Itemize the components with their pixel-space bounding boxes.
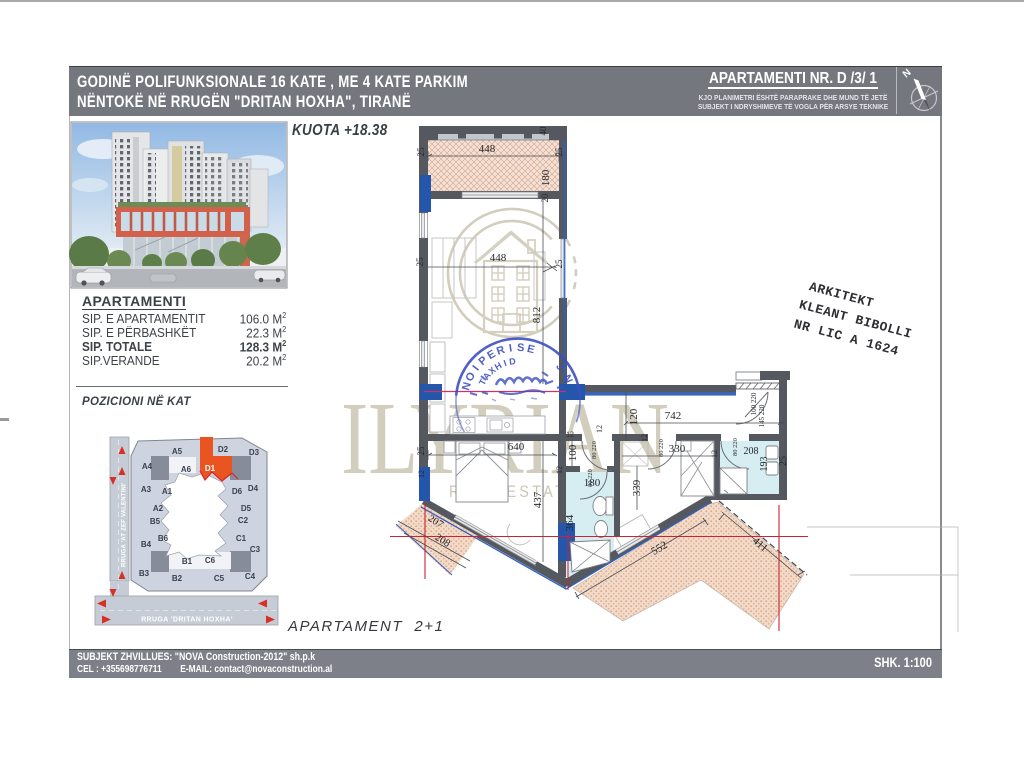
svg-text:C5: C5 xyxy=(214,574,225,583)
svg-text:437: 437 xyxy=(532,491,544,508)
svg-text:12: 12 xyxy=(417,470,426,478)
svg-text:12: 12 xyxy=(566,430,574,439)
svg-text:D1: D1 xyxy=(205,464,216,473)
svg-text:C4: C4 xyxy=(245,572,256,581)
svg-text:80 220: 80 220 xyxy=(732,438,739,456)
svg-text:B3: B3 xyxy=(139,569,150,578)
svg-text:12: 12 xyxy=(640,434,649,442)
svg-text:D2: D2 xyxy=(218,445,229,454)
svg-text:B2: B2 xyxy=(172,574,183,583)
svg-text:25: 25 xyxy=(415,257,425,267)
svg-text:12: 12 xyxy=(710,450,719,458)
svg-text:25: 25 xyxy=(778,456,789,466)
svg-text:12: 12 xyxy=(555,466,564,474)
svg-text:100 220: 100 220 xyxy=(750,392,758,415)
svg-text:B5: B5 xyxy=(150,517,161,526)
svg-text:B4: B4 xyxy=(141,540,152,549)
svg-text:339: 339 xyxy=(631,479,643,496)
svg-text:12: 12 xyxy=(595,425,604,433)
svg-text:742: 742 xyxy=(665,410,682,422)
svg-text:A3: A3 xyxy=(141,485,152,494)
svg-text:20: 20 xyxy=(540,193,550,203)
svg-text:D3: D3 xyxy=(249,448,260,457)
svg-text:A6: A6 xyxy=(181,465,192,474)
svg-text:B1: B1 xyxy=(182,557,193,566)
svg-text:25: 25 xyxy=(416,147,426,157)
svg-text:364: 364 xyxy=(564,514,576,531)
svg-text:A4: A4 xyxy=(142,462,153,471)
svg-text:C3: C3 xyxy=(250,545,261,554)
svg-text:N: N xyxy=(901,67,914,80)
svg-text:640: 640 xyxy=(508,441,525,453)
svg-text:145 220: 145 220 xyxy=(758,404,766,427)
svg-text:A2: A2 xyxy=(153,504,164,513)
svg-text:80 220: 80 220 xyxy=(587,469,594,487)
svg-text:330: 330 xyxy=(669,443,686,455)
svg-text:RRUGA 'AT ZEF VALENTINI': RRUGA 'AT ZEF VALENTINI' xyxy=(122,482,128,567)
svg-text:208: 208 xyxy=(744,446,759,457)
svg-text:D5: D5 xyxy=(241,504,252,513)
svg-text:180: 180 xyxy=(540,169,552,186)
svg-text:80 220: 80 220 xyxy=(591,441,598,459)
svg-text:25: 25 xyxy=(554,147,564,157)
svg-text:40: 40 xyxy=(538,126,548,136)
svg-text:C1: C1 xyxy=(236,534,247,543)
svg-text:A5: A5 xyxy=(172,447,183,456)
svg-text:100: 100 xyxy=(567,444,579,461)
svg-text:D6: D6 xyxy=(232,487,243,496)
svg-text:120: 120 xyxy=(628,408,640,425)
svg-text:25: 25 xyxy=(416,446,426,456)
svg-text:193: 193 xyxy=(759,457,770,472)
svg-text:80 220: 80 220 xyxy=(658,439,665,457)
svg-text:448: 448 xyxy=(479,143,496,155)
svg-text:A1: A1 xyxy=(162,487,173,496)
svg-text:812: 812 xyxy=(531,307,543,324)
svg-text:S: S xyxy=(517,342,525,354)
svg-text:D4: D4 xyxy=(248,484,259,493)
svg-text:C6: C6 xyxy=(205,556,216,565)
svg-text:RRUGA 'DRITAN HOXHA': RRUGA 'DRITAN HOXHA' xyxy=(141,617,233,624)
svg-text:448: 448 xyxy=(490,252,507,264)
svg-text:C2: C2 xyxy=(238,516,249,525)
svg-text:25: 25 xyxy=(554,259,564,269)
svg-text:B6: B6 xyxy=(158,534,169,543)
